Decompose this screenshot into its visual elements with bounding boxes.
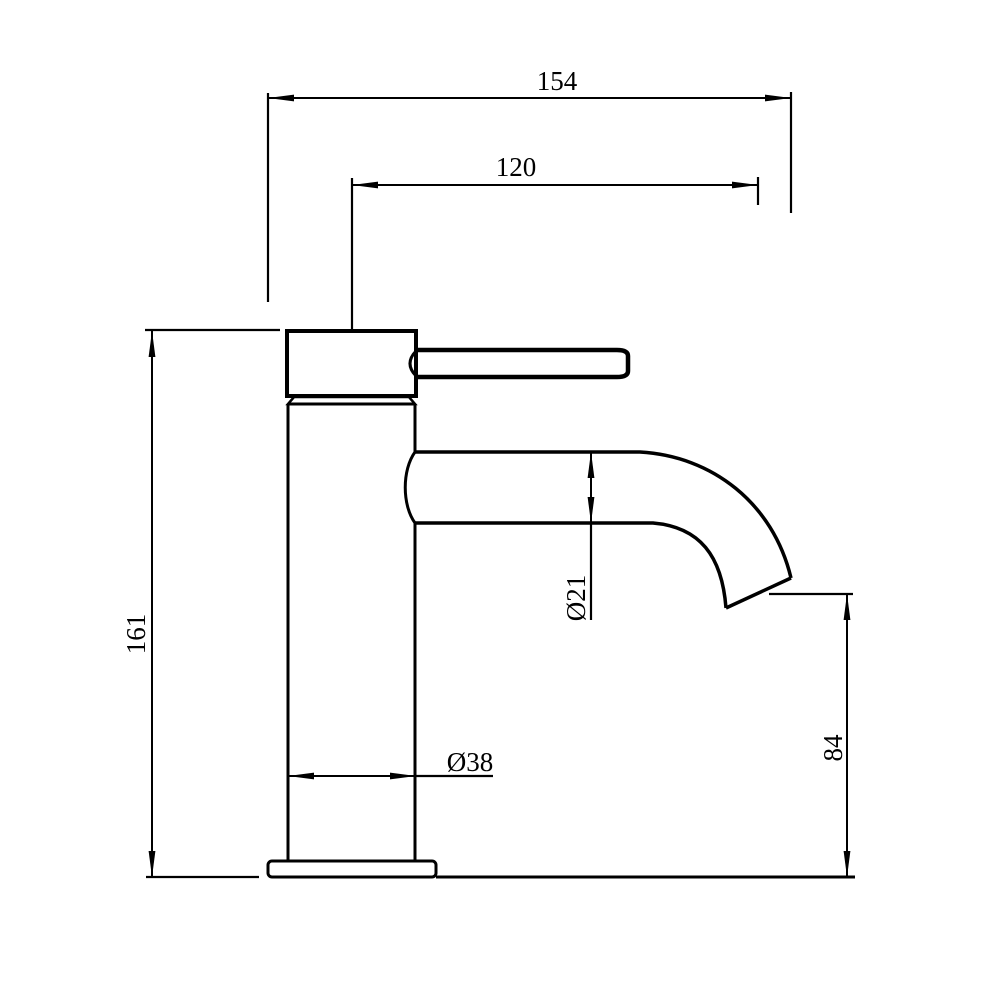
spout-body-fillet	[405, 452, 415, 523]
spout-outer-curve	[415, 452, 791, 578]
faucet-dimension-drawing: 154 120 161 Ø21	[0, 0, 999, 999]
faucet-handle-lever	[416, 350, 628, 377]
dim-120-label: 120	[496, 152, 537, 182]
base-plate	[268, 861, 436, 877]
dimension-annotations: 154 120 161 Ø21	[121, 66, 853, 877]
dim-84-label: 84	[818, 734, 848, 762]
dim-161-label: 161	[121, 614, 151, 655]
dim-outlet-height: 84	[769, 594, 853, 877]
dim-spout-diameter: Ø21	[561, 452, 591, 621]
dim-spout-reach: 120	[352, 152, 758, 330]
dim-38-label: Ø38	[447, 747, 494, 777]
technical-drawing-canvas: 154 120 161 Ø21	[0, 0, 999, 999]
faucet-head	[287, 331, 416, 396]
faucet-body	[288, 404, 415, 861]
dim-21-label: Ø21	[561, 575, 591, 622]
dim-154-label: 154	[537, 66, 578, 96]
dim-overall-height: 161	[121, 330, 280, 877]
dim-body-diameter: Ø38	[288, 747, 493, 777]
